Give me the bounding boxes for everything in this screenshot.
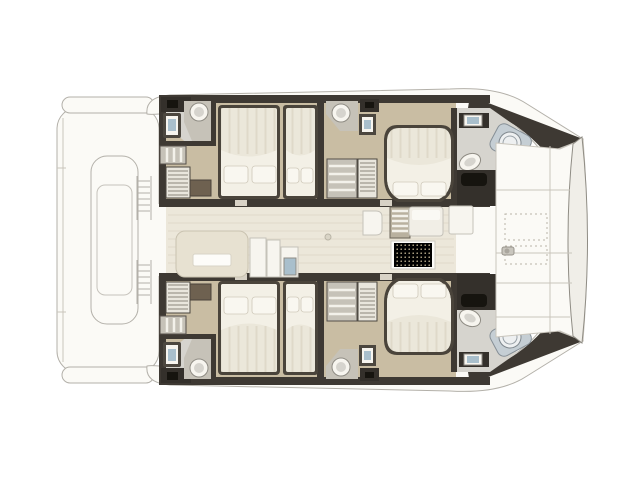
- galley-unit: [250, 238, 266, 277]
- nav-seat: [449, 206, 473, 234]
- table-leg-mount: [325, 234, 331, 240]
- seat: [363, 211, 382, 235]
- tender-lift-platform: [91, 156, 138, 324]
- pillow: [393, 182, 418, 196]
- forward-cabin-island-berth: [384, 125, 454, 202]
- table-top-highlight: [412, 210, 440, 220]
- duvet: [286, 108, 315, 154]
- galley-sink-icon: [284, 258, 296, 275]
- aft-cabin-single-berth: [283, 105, 318, 199]
- pillow: [301, 168, 313, 183]
- pillow: [252, 166, 276, 183]
- bow-crossbeam-band: [568, 137, 588, 343]
- aft-head-wall: [211, 99, 216, 146]
- cabin-door-gap: [235, 200, 247, 206]
- salon-sofa: [176, 231, 248, 277]
- duvet: [221, 108, 277, 154]
- cabin-door-gap: [380, 200, 392, 206]
- sink-basin: [467, 117, 479, 124]
- fridge: [267, 240, 280, 277]
- pillow: [224, 166, 248, 183]
- aft-cabin-double-berth: [218, 105, 280, 199]
- duvet: [387, 128, 451, 158]
- foredeck: [496, 137, 588, 343]
- doormat-texture: [394, 243, 432, 267]
- sofa-table: [193, 254, 231, 266]
- stern-step-bottom: [62, 367, 154, 383]
- pillow: [421, 182, 446, 196]
- sink-basin: [336, 108, 346, 118]
- windlass-icon: [502, 247, 514, 255]
- cabin-divider-wall: [317, 99, 324, 203]
- pillow: [287, 168, 299, 183]
- stern-step-top: [62, 97, 154, 113]
- locker-icon: [365, 102, 374, 108]
- cabinet: [190, 180, 211, 196]
- catamaran-deck-plan: [0, 0, 640, 480]
- boat-plan-drawing: [0, 0, 640, 480]
- bench-icon: [461, 173, 487, 186]
- sink-basin: [194, 107, 204, 117]
- shower-icon: [167, 100, 178, 108]
- toilet-lid: [168, 119, 176, 131]
- mirror-glass: [364, 120, 371, 129]
- aft-head-partition: [162, 141, 214, 146]
